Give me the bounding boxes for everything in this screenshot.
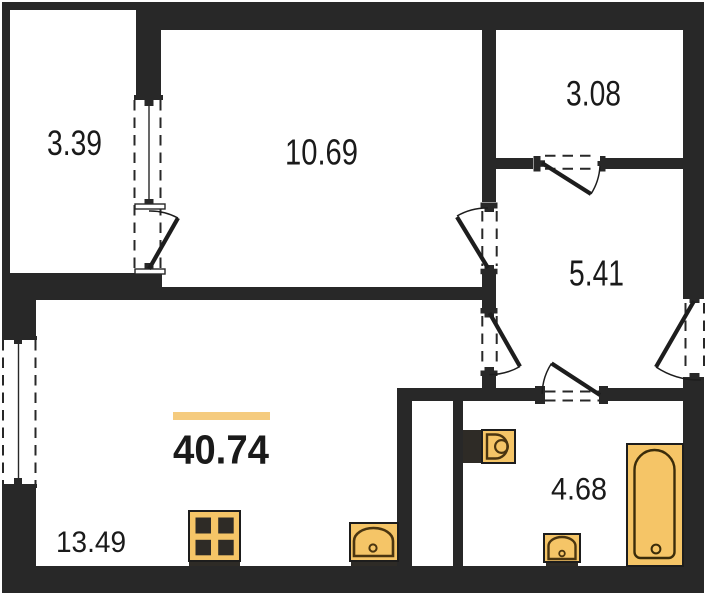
svg-text:5.41: 5.41	[569, 252, 624, 293]
svg-text:3.39: 3.39	[47, 124, 102, 163]
svg-text:10.69: 10.69	[285, 131, 358, 172]
svg-text:4.68: 4.68	[551, 470, 607, 506]
svg-text:13.49: 13.49	[56, 526, 126, 559]
svg-text:3.08: 3.08	[566, 75, 621, 114]
svg-text:40.74: 40.74	[173, 426, 269, 472]
